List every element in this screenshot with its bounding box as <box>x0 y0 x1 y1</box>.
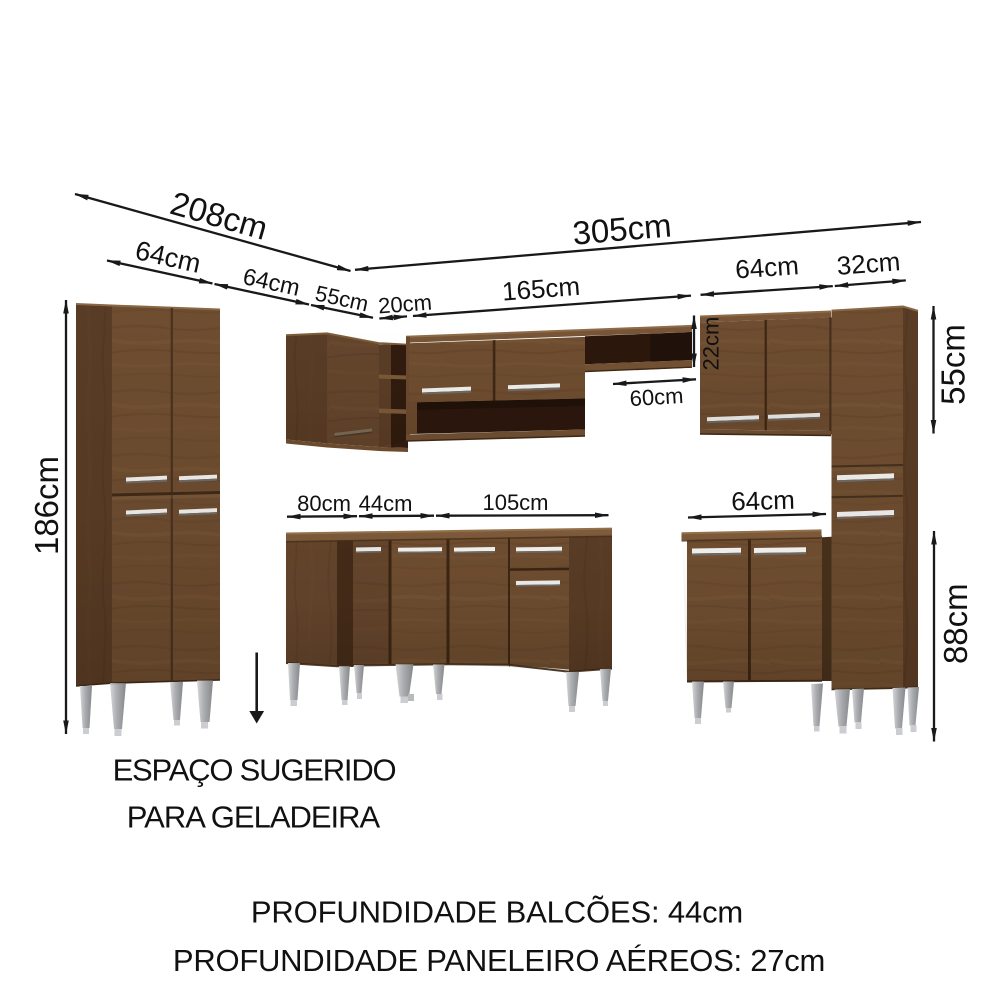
svg-text:64cm: 64cm <box>734 250 800 284</box>
svg-text:165cm: 165cm <box>501 271 581 307</box>
svg-text:60cm: 60cm <box>629 383 684 411</box>
svg-text:80cm: 80cm <box>297 491 351 516</box>
svg-text:64cm: 64cm <box>731 485 795 517</box>
svg-text:55cm: 55cm <box>935 324 972 405</box>
svg-text:ESPAÇO SUGERIDO: ESPAÇO SUGERIDO <box>113 753 396 788</box>
svg-text:105cm: 105cm <box>482 490 548 515</box>
svg-text:44cm: 44cm <box>359 491 413 516</box>
svg-text:32cm: 32cm <box>836 246 902 281</box>
svg-text:88cm: 88cm <box>937 583 974 664</box>
svg-text:PARA GELADEIRA: PARA GELADEIRA <box>127 800 381 835</box>
svg-text:PROFUNDIDADE PANELEIRO AÉREOS:: PROFUNDIDADE PANELEIRO AÉREOS: 27cm <box>173 943 825 978</box>
svg-text:22cm: 22cm <box>699 317 724 371</box>
svg-text:PROFUNDIDADE BALCÕES: 44cm: PROFUNDIDADE BALCÕES: 44cm <box>251 895 743 930</box>
svg-text:186cm: 186cm <box>28 456 65 555</box>
